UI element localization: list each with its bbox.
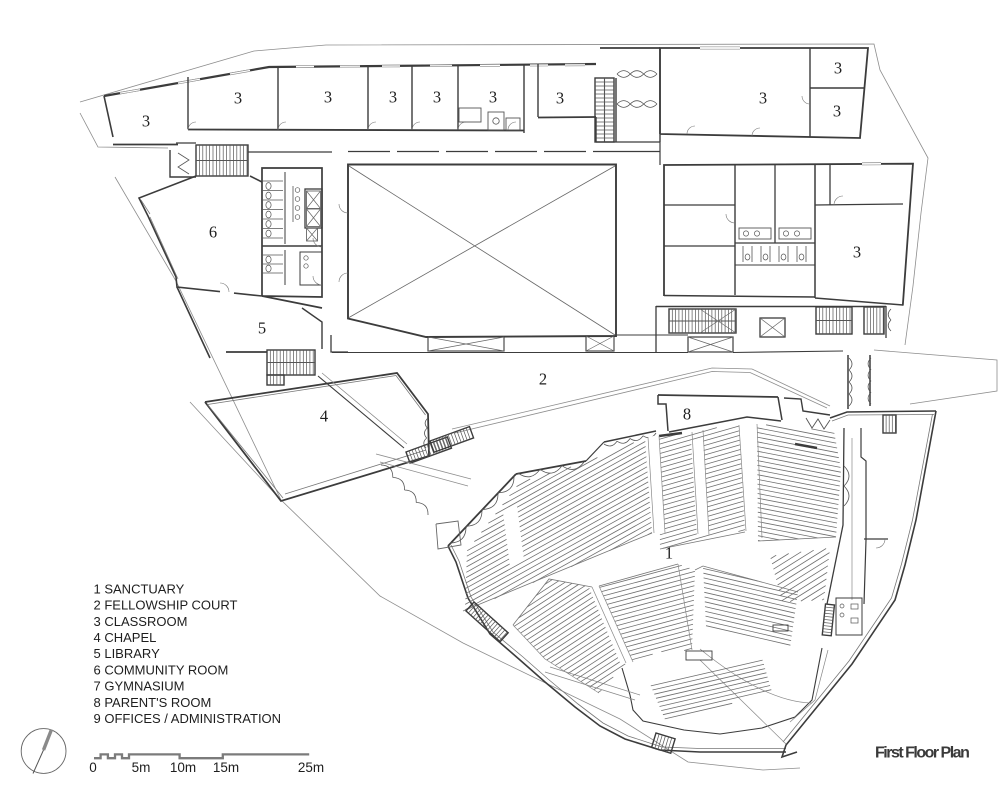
svg-text:3: 3 — [389, 88, 397, 107]
svg-text:3: 3 — [142, 112, 150, 131]
svg-text:6: 6 — [209, 223, 217, 242]
svg-text:15m: 15m — [213, 760, 239, 775]
svg-text:7 GYMNASIUM: 7 GYMNASIUM — [94, 679, 185, 694]
svg-text:6 COMMUNITY ROOM: 6 COMMUNITY ROOM — [94, 662, 229, 677]
svg-text:2: 2 — [539, 370, 547, 389]
svg-text:8: 8 — [683, 405, 691, 424]
svg-text:3: 3 — [833, 102, 841, 121]
svg-text:3 CLASSROOM: 3 CLASSROOM — [94, 614, 188, 629]
svg-text:2 FELLOWSHIP COURT: 2 FELLOWSHIP COURT — [94, 598, 238, 613]
svg-text:5m: 5m — [132, 760, 151, 775]
svg-text:1 SANCTUARY: 1 SANCTUARY — [94, 581, 185, 596]
svg-text:3: 3 — [556, 89, 564, 108]
svg-text:8 PARENT'S ROOM: 8 PARENT'S ROOM — [94, 695, 212, 710]
svg-text:25m: 25m — [298, 760, 324, 775]
svg-text:3: 3 — [759, 89, 767, 108]
svg-text:First Floor Plan: First Floor Plan — [875, 745, 969, 762]
svg-text:3: 3 — [234, 89, 242, 108]
svg-text:3: 3 — [853, 243, 861, 262]
svg-text:4: 4 — [320, 407, 328, 426]
svg-text:9 OFFICES / ADMINISTRATION: 9 OFFICES / ADMINISTRATION — [94, 711, 282, 726]
svg-text:3: 3 — [324, 88, 332, 107]
svg-text:3: 3 — [489, 88, 497, 107]
svg-text:3: 3 — [834, 59, 842, 78]
svg-text:10m: 10m — [170, 760, 196, 775]
svg-text:0: 0 — [89, 760, 97, 775]
svg-text:1: 1 — [665, 544, 673, 563]
svg-text:5 LIBRARY: 5 LIBRARY — [94, 646, 161, 661]
svg-text:3: 3 — [433, 88, 441, 107]
svg-text:5: 5 — [258, 319, 266, 338]
svg-text:4 CHAPEL: 4 CHAPEL — [94, 630, 157, 645]
